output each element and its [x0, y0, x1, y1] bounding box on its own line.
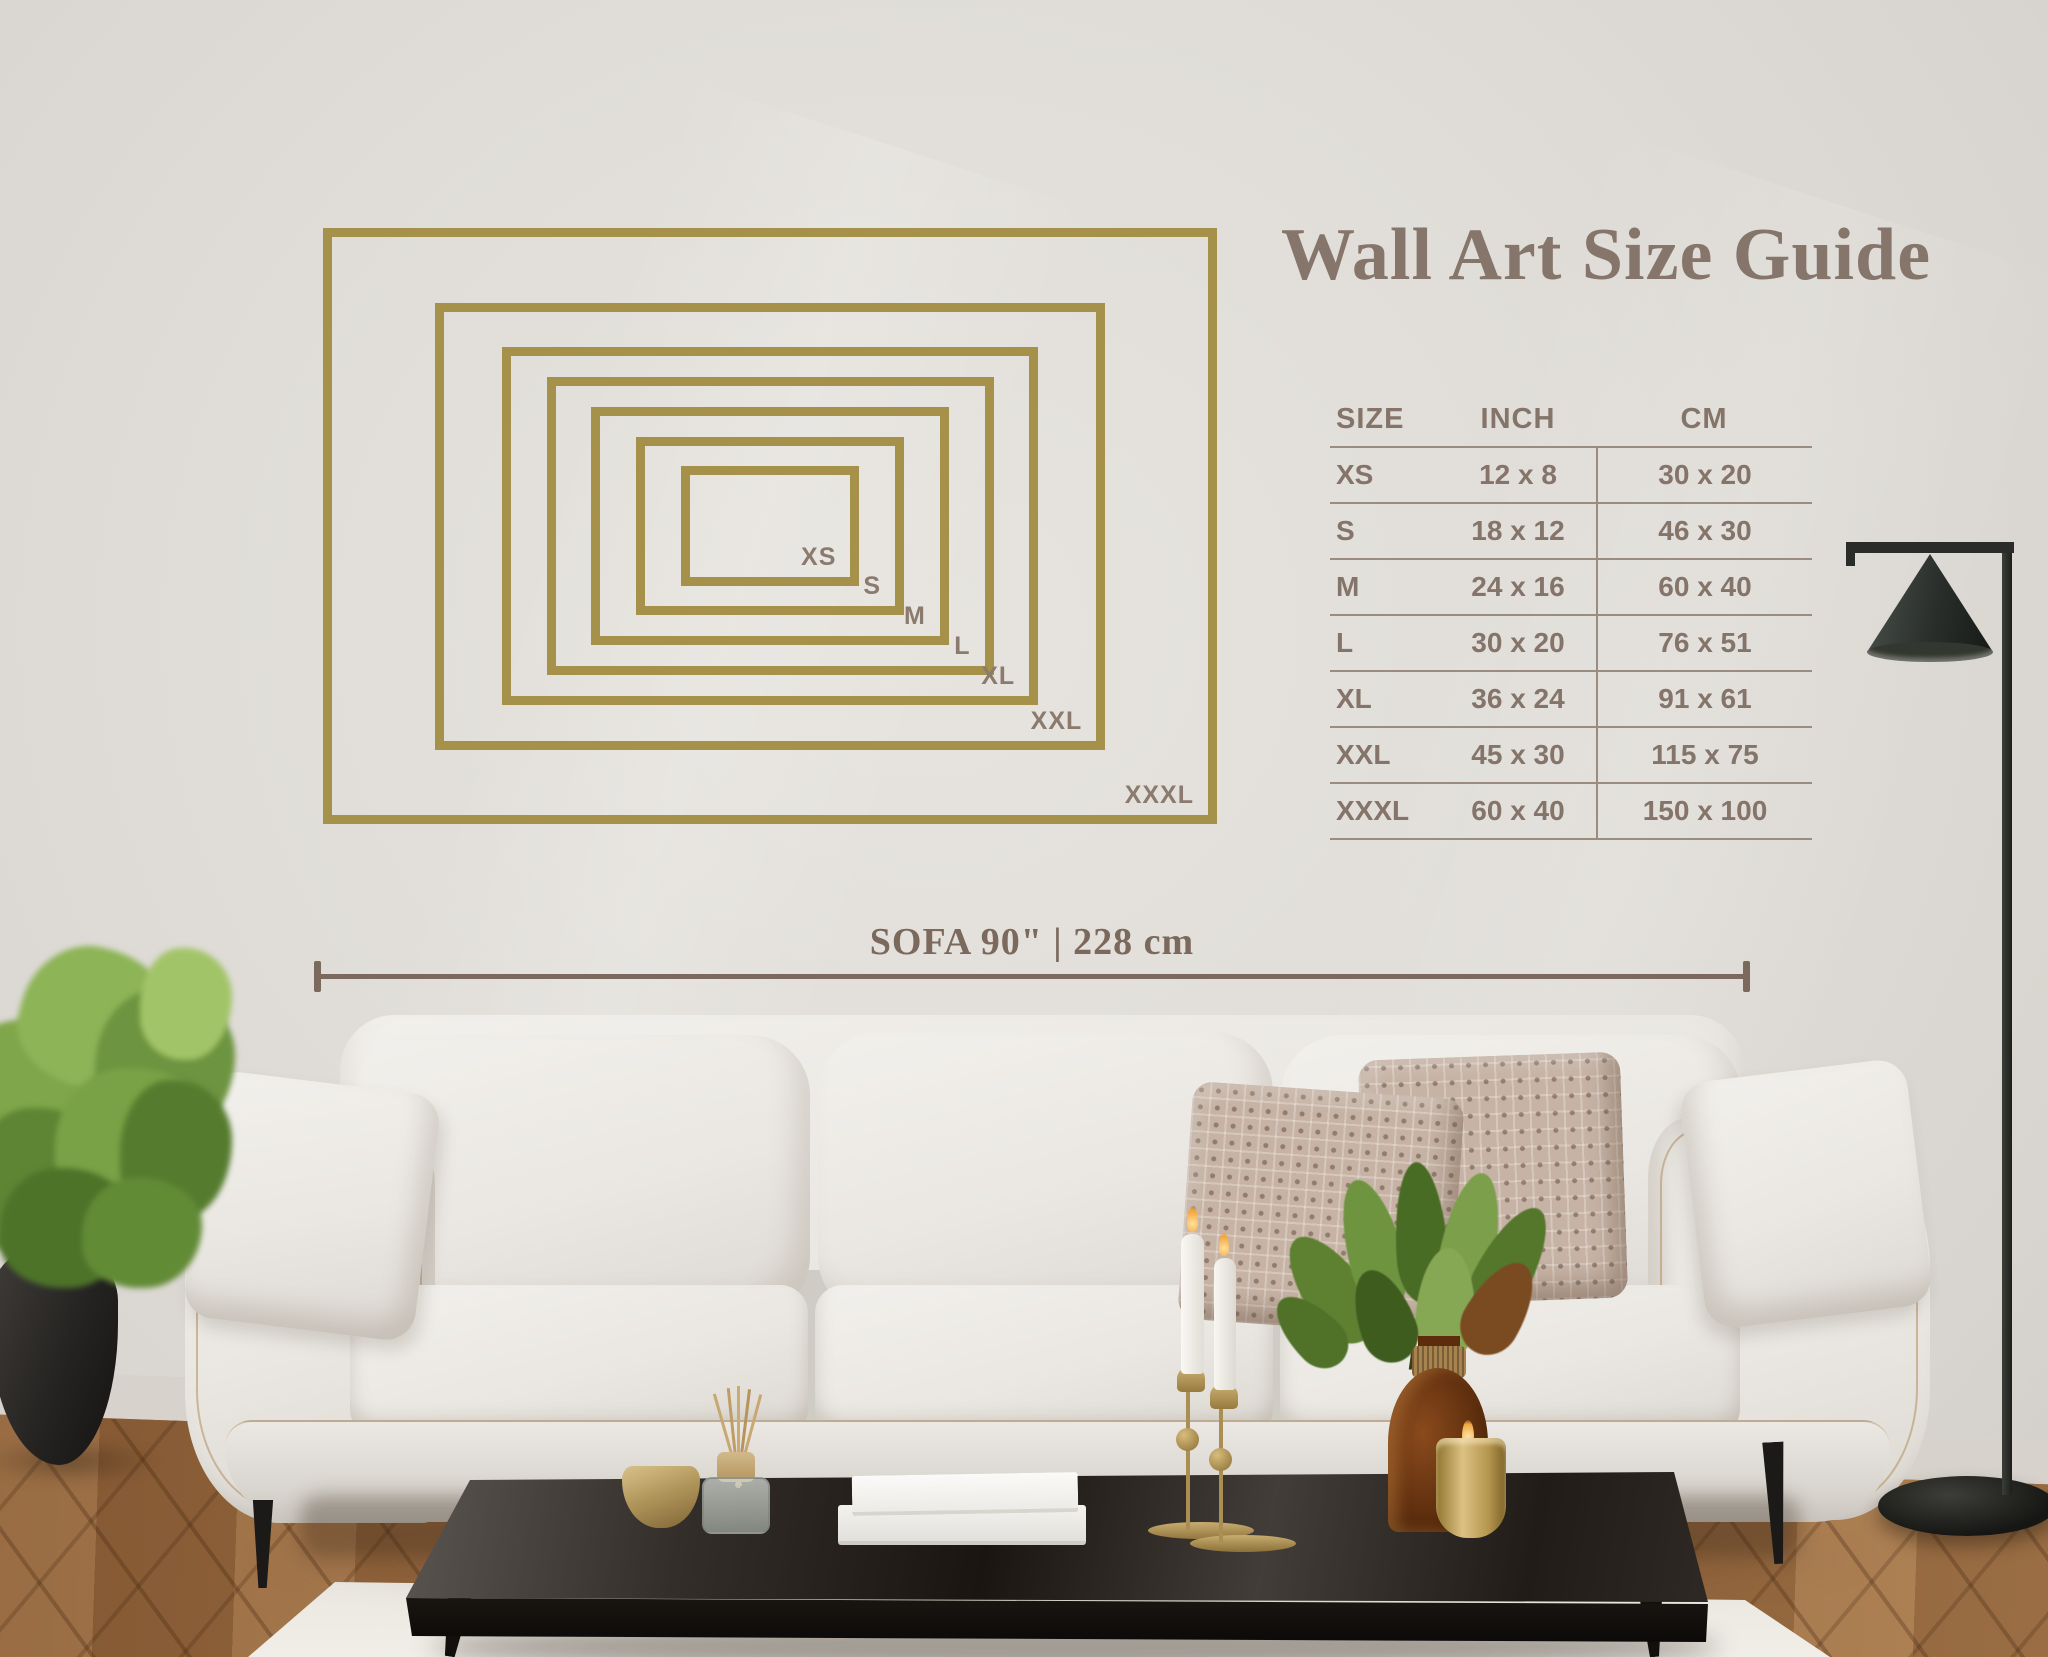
- lamp-arm: [1846, 542, 2014, 553]
- size-table-cell: XL: [1330, 672, 1440, 726]
- candlestick-stem: [1186, 1390, 1190, 1530]
- size-table-body: XS12 x 830 x 20S18 x 1246 x 30M24 x 1660…: [1330, 448, 1812, 840]
- size-table-cell: 46 x 30: [1596, 504, 1812, 558]
- leaf-cluster: [82, 1178, 202, 1288]
- col-header-size: SIZE: [1330, 403, 1440, 436]
- lamp-pole: [2002, 545, 2012, 1495]
- size-table-cell: 30 x 20: [1440, 616, 1596, 670]
- measure-line: [317, 974, 1747, 979]
- size-table-row-m: M24 x 1660 x 40: [1330, 560, 1812, 616]
- size-table-cell: 18 x 12: [1440, 504, 1596, 558]
- size-table-cell: 36 x 24: [1440, 672, 1596, 726]
- size-table-row-xl: XL36 x 2491 x 61: [1330, 672, 1812, 728]
- gold-candle-cup: [1436, 1438, 1506, 1538]
- size-table-cell: 150 x 100: [1596, 784, 1812, 838]
- col-header-inch: INCH: [1440, 403, 1596, 436]
- size-table-cell: 115 x 75: [1596, 728, 1812, 782]
- frame-rect-xxxl: XXXL: [323, 228, 1217, 824]
- col-header-cm: CM: [1596, 403, 1812, 436]
- lamp-shade-rim: [1867, 642, 1993, 662]
- page-title: Wall Art Size Guide: [1281, 213, 1931, 298]
- throw-pillow-white-right: [1678, 1057, 1935, 1331]
- candlestick-ball: [1176, 1428, 1199, 1451]
- candlestick-stem: [1219, 1406, 1223, 1542]
- candlestick-base: [1190, 1535, 1296, 1552]
- measure-cap-left: [314, 961, 321, 992]
- candle-right: [1214, 1258, 1236, 1390]
- size-table-row-xs: XS12 x 830 x 20: [1330, 448, 1812, 504]
- size-table-row-xxl: XXL45 x 30115 x 75: [1330, 728, 1812, 784]
- size-table-cell: XS: [1330, 448, 1440, 502]
- size-table-row-s: S18 x 1246 x 30: [1330, 504, 1812, 560]
- sofa-measure-label: SOFA 90" | 228 cm: [317, 920, 1747, 964]
- lamp-arm-end: [1846, 542, 1855, 566]
- size-table-row-l: L30 x 2076 x 51: [1330, 616, 1812, 672]
- candlestick-ball: [1209, 1448, 1232, 1471]
- lamp-shade: [1867, 554, 1993, 652]
- size-table-cell: M: [1330, 560, 1440, 614]
- size-table-cell: 60 x 40: [1440, 784, 1596, 838]
- measure-cap-right: [1743, 961, 1750, 992]
- size-table-cell: L: [1330, 616, 1440, 670]
- scene: XSSMLXLXXLXXXL Wall Art Size Guide SIZE …: [0, 0, 2048, 1657]
- size-table-cell: 12 x 8: [1440, 448, 1596, 502]
- size-table-row-xxxl: XXXL60 x 40150 x 100: [1330, 784, 1812, 840]
- lamp-base: [1878, 1476, 2048, 1536]
- size-table-cell: 30 x 20: [1596, 448, 1812, 502]
- candle-left: [1181, 1234, 1204, 1374]
- frame-size-label: XXXL: [1125, 781, 1194, 810]
- size-table: SIZE INCH CM XS12 x 830 x 20S18 x 1246 x…: [1330, 392, 1812, 840]
- size-table-cell: 45 x 30: [1440, 728, 1596, 782]
- size-table-cell: 60 x 40: [1596, 560, 1812, 614]
- size-table-header: SIZE INCH CM: [1330, 392, 1812, 448]
- size-table-cell: XXXL: [1330, 784, 1440, 838]
- size-table-cell: S: [1330, 504, 1440, 558]
- diffuser-jar: [702, 1477, 770, 1534]
- size-table-cell: 24 x 16: [1440, 560, 1596, 614]
- size-table-cell: XXL: [1330, 728, 1440, 782]
- size-table-cell: 76 x 51: [1596, 616, 1812, 670]
- size-table-cell: 91 x 61: [1596, 672, 1812, 726]
- book-top: [852, 1472, 1079, 1516]
